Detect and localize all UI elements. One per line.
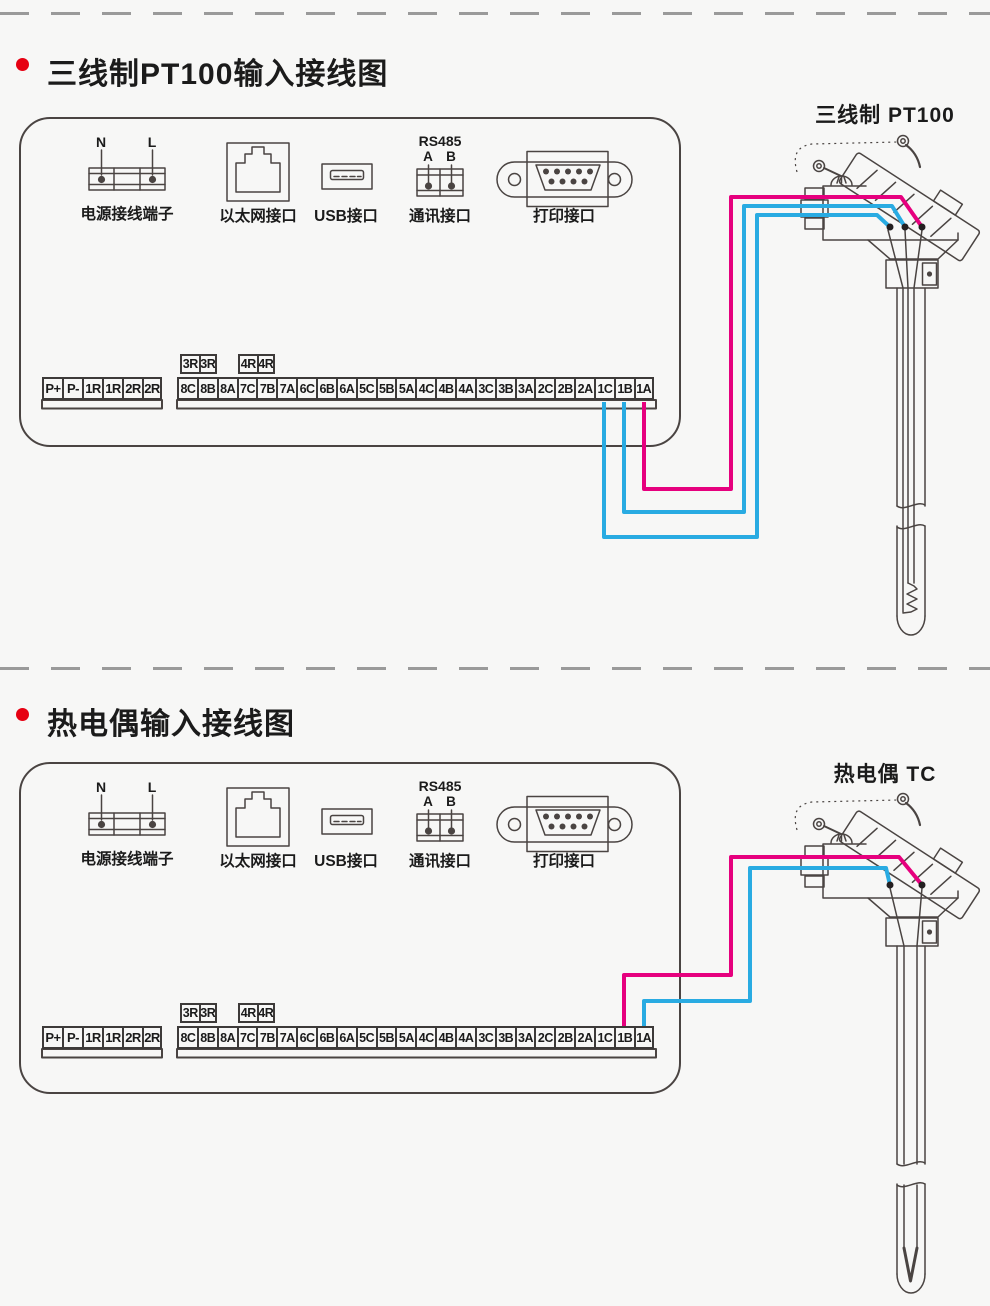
terminal-cell: 2R: [122, 377, 142, 400]
usb-port-label: USB接口: [314, 849, 378, 871]
power-pin-n: N: [96, 134, 106, 150]
tc-wires: [624, 857, 922, 1026]
comm-bus-label: RS485: [419, 133, 462, 149]
comm-port-label: 通讯接口: [409, 849, 471, 871]
terminal-cell: 8C: [177, 377, 197, 400]
comm-port-label: 通讯接口: [409, 204, 471, 226]
terminal-cell: 4R: [257, 354, 276, 374]
terminal-cell: 5A: [395, 1026, 415, 1049]
terminal-cell: 4A: [455, 377, 475, 400]
terminal-cell: 3C: [475, 1026, 495, 1049]
terminal-cell: 2B: [554, 377, 574, 400]
terminal-cell: 5A: [395, 377, 415, 400]
terminal-cell: 5C: [356, 1026, 376, 1049]
terminal-cell: 5C: [356, 377, 376, 400]
terminal-cell: 7B: [256, 1026, 276, 1049]
terminal-cell: 2C: [534, 377, 554, 400]
terminal-cell: 6A: [336, 377, 356, 400]
terminal-cell: 8C: [177, 1026, 197, 1049]
terminal-cell: 2R: [142, 1026, 162, 1049]
usb-port-label: USB接口: [314, 204, 378, 226]
sensor-label: 三线制 PT100: [790, 99, 980, 129]
terminal-cell: 3B: [495, 1026, 515, 1049]
terminal-cell: 4B: [435, 377, 455, 400]
terminal-cell: P+: [42, 377, 62, 400]
terminal-cell: 1B: [614, 1026, 634, 1049]
sensor-label: 热电偶 TC: [790, 758, 980, 788]
section-title: 三线制PT100输入接线图: [47, 49, 388, 93]
terminal-cell: 6B: [316, 377, 336, 400]
terminal-cell: 7C: [237, 1026, 257, 1049]
terminal-cell: 3R: [180, 1003, 199, 1023]
terminal-cell: 8A: [217, 1026, 237, 1049]
terminal-cell: 6B: [316, 1026, 336, 1049]
relay-cells-4r: 4R4R: [238, 354, 275, 374]
relay-cells-3r: 3R3R: [180, 354, 217, 374]
terminal-cell: 4B: [435, 1026, 455, 1049]
terminal-cell: 7B: [256, 377, 276, 400]
dashed-separator-top: [0, 12, 990, 15]
terminal-cell: 2A: [574, 377, 594, 400]
terminal-cell: 8A: [217, 377, 237, 400]
printer-port-label: 打印接口: [533, 849, 595, 871]
terminal-cell: 6A: [336, 1026, 356, 1049]
terminal-cell: 8B: [197, 377, 217, 400]
terminal-cell: 6C: [296, 1026, 316, 1049]
terminal-cell: 4C: [415, 377, 435, 400]
terminal-strip-main: 8C8B8A7C7B7A6C6B6A5C5B5A4C4B4A3C3B3A2C2B…: [177, 377, 654, 400]
terminal-cell: 5B: [376, 377, 396, 400]
terminal-cell: 2C: [534, 1026, 554, 1049]
power-port-label: 电源接线端子: [80, 847, 173, 869]
terminal-strip-left: P+P-1R1R2R2R: [42, 1026, 162, 1049]
terminal-cell: 8B: [197, 1026, 217, 1049]
terminal-cell: 4R: [257, 1003, 276, 1023]
terminal-cell: 5B: [376, 1026, 396, 1049]
terminal-cell: 3C: [475, 377, 495, 400]
comm-pin-b: B: [446, 794, 456, 809]
bullet-icon: [16, 58, 29, 71]
terminal-cell: 1B: [614, 377, 634, 400]
power-port-label: 电源接线端子: [80, 202, 173, 224]
section-title: 热电偶输入接线图: [47, 699, 295, 743]
printer-port-label: 打印接口: [533, 204, 595, 226]
terminal-cell: 1R: [82, 377, 102, 400]
bullet-icon: [16, 708, 29, 721]
terminal-cell: 3R: [199, 1003, 218, 1023]
dashed-separator-middle: [0, 667, 990, 670]
terminal-cell: 1A: [634, 377, 654, 400]
terminal-cell: P-: [62, 377, 82, 400]
terminal-cell: 1R: [102, 377, 122, 400]
relay-cells-4r: 4R4R: [238, 1003, 275, 1023]
pt100-wires: [604, 197, 922, 537]
terminal-cell: 4R: [238, 1003, 257, 1023]
comm-pin-b: B: [446, 149, 456, 164]
ethernet-port-label: 以太网接口: [219, 204, 297, 226]
terminal-cell: 3R: [180, 354, 199, 374]
comm-pin-a: A: [423, 794, 433, 809]
power-pin-n: N: [96, 779, 106, 795]
terminal-cell: 3A: [515, 1026, 535, 1049]
terminal-cell: 1C: [594, 377, 614, 400]
terminal-cell: 2R: [122, 1026, 142, 1049]
relay-cells-3r: 3R3R: [180, 1003, 217, 1023]
terminal-cell: 4R: [238, 354, 257, 374]
terminal-cell: 7A: [276, 1026, 296, 1049]
terminal-cell: 6C: [296, 377, 316, 400]
power-pin-l: L: [148, 134, 157, 150]
terminal-cell: 4C: [415, 1026, 435, 1049]
terminal-cell: 1R: [102, 1026, 122, 1049]
terminal-cell: 1A: [634, 1026, 654, 1049]
ethernet-port-label: 以太网接口: [219, 849, 297, 871]
terminal-cell: 3R: [199, 354, 218, 374]
terminal-cell: 2A: [574, 1026, 594, 1049]
terminal-cell: P-: [62, 1026, 82, 1049]
terminal-cell: P+: [42, 1026, 62, 1049]
wiring-diagram-page: 三线制PT100输入接线图 三线制 PT100 N L RS485 A B 电源…: [0, 0, 990, 1306]
terminal-cell: 7C: [237, 377, 257, 400]
terminal-cell: 7A: [276, 377, 296, 400]
diagram-linework: [0, 0, 990, 1306]
power-pin-l: L: [148, 779, 157, 795]
comm-pin-a: A: [423, 149, 433, 164]
terminal-cell: 2R: [142, 377, 162, 400]
terminal-strip-main: 8C8B8A7C7B7A6C6B6A5C5B5A4C4B4A3C3B3A2C2B…: [177, 1026, 654, 1049]
terminal-cell: 4A: [455, 1026, 475, 1049]
terminal-cell: 2B: [554, 1026, 574, 1049]
comm-bus-label: RS485: [419, 778, 462, 794]
terminal-strip-left: P+P-1R1R2R2R: [42, 377, 162, 400]
pt100-element: [888, 230, 922, 613]
tc-element: [890, 888, 922, 1281]
terminal-cell: 3A: [515, 377, 535, 400]
terminal-cell: 3B: [495, 377, 515, 400]
terminal-cell: 1C: [594, 1026, 614, 1049]
terminal-cell: 1R: [82, 1026, 102, 1049]
